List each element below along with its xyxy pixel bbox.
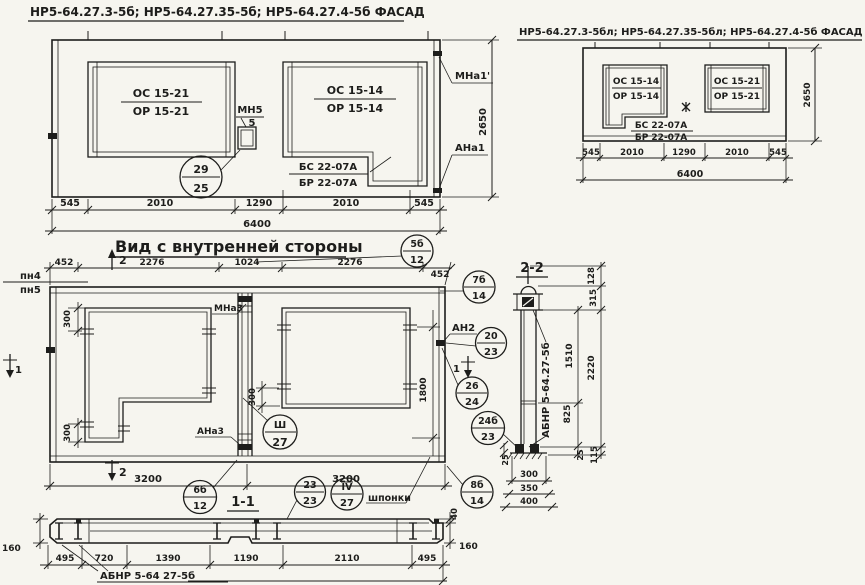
node-num: 24 — [465, 397, 479, 408]
top-tick-marks — [88, 31, 428, 40]
node-circle-6b-12: 6б 12 — [184, 460, 238, 514]
node-num: Ш — [274, 420, 286, 431]
node-num: 12 — [410, 255, 424, 266]
section-label: АБНР 5-64.27-5б — [529, 310, 552, 447]
node-num: 26 — [465, 381, 479, 392]
dim-160-left: 160 — [2, 513, 48, 554]
dim-label: 2650 — [478, 108, 489, 136]
dim-label: 545 — [769, 148, 787, 158]
star-mark — [682, 102, 690, 112]
window-mark: ОС 15-21 — [133, 87, 189, 100]
dim-label: 1390 — [155, 554, 180, 564]
mullion-mark: МН5 — [237, 105, 262, 116]
inner-view-title: Вид с внутренней стороны — [115, 237, 363, 256]
window-mark: ОР 15-14 — [327, 102, 384, 115]
section-1-1: 1-1 160 — [2, 495, 478, 585]
dim-label: 1290 — [672, 148, 696, 158]
node-num: 23 — [303, 496, 317, 507]
dim-label: 1024 — [234, 258, 259, 268]
beam-mark: БС 22-07А БР 22-07А — [289, 157, 391, 189]
node-circle-24b-23: 24б 23 — [472, 412, 519, 449]
facade-mirror-view: НР5-64.27.3-5бл; НР5-64.27.35-5бл; НР5-6… — [517, 26, 863, 183]
cut-marker-1-right: 1 — [453, 356, 475, 378]
edge-anchor-mark — [48, 133, 57, 139]
dim-label: 495 — [418, 554, 437, 564]
rail-label-top: пн4 — [20, 271, 41, 282]
dim-label: 1800 — [419, 377, 429, 402]
dim-label: 2010 — [147, 198, 174, 209]
ground-hatch — [508, 453, 542, 459]
dim-300-mid: 300 — [248, 381, 280, 413]
node-num: 23 — [481, 432, 495, 443]
dim-label: 25 — [576, 449, 585, 461]
drawing-sheet: НР5-64.27.3-5б; НР5-64.27.35-5б; НР5-64.… — [0, 0, 865, 585]
dim-label: 300 — [248, 388, 258, 406]
node-num: 14 — [472, 291, 486, 302]
dim-label: 315 — [589, 289, 599, 307]
label-mna3: МНа3 — [212, 304, 246, 314]
node-circle-8b-14: 8б 14 — [447, 466, 493, 508]
node-circle-26-24: 26 24 — [442, 348, 488, 409]
top-dimensions: 452 2276 1024 2276 452 — [44, 258, 455, 285]
node-num: 23 — [303, 480, 316, 491]
beam-mark-bottom: БР 22-07А — [635, 133, 687, 143]
ibeam-symbols — [55, 519, 440, 539]
dim-label: 6400 — [243, 219, 271, 230]
window-right: ОС 15-21 ОР 15-21 — [705, 65, 769, 112]
anchor-label-bottom: АНа1 — [455, 143, 485, 154]
dim-label: 128 — [587, 267, 597, 285]
dim-label: 2010 — [620, 148, 644, 158]
rail-labels: пн4 пн5 — [3, 271, 88, 296]
dim-label: 160 — [2, 544, 21, 554]
rail-label-bottom: пн5 — [20, 285, 41, 296]
bolt-marks — [277, 325, 417, 389]
facade-main-view: НР5-64.27.3-5б; НР5-64.27.35-5б; НР5-64.… — [28, 5, 499, 235]
dim-label: 2110 — [334, 554, 359, 564]
cut-label: 2 — [119, 254, 127, 267]
section-title: 2-2 — [520, 261, 544, 276]
height-dimension: 2650 — [788, 44, 822, 145]
dim-label: 6400 — [677, 169, 704, 180]
part-label: шпонки — [368, 493, 411, 504]
dim-label: 300 — [520, 470, 538, 480]
facade-mirror-title: НР5-64.27.3-5бл; НР5-64.27.35-5бл; НР5-6… — [519, 26, 863, 38]
beam-mark-top: БС 22-07А — [635, 121, 687, 131]
dim-label: 2010 — [333, 198, 360, 209]
dim-label: 452 — [431, 270, 450, 280]
node-num: 27 — [340, 498, 354, 509]
ibeam — [74, 523, 82, 539]
node-num: 24б — [478, 416, 498, 427]
height-dimension: 2650 — [442, 36, 499, 201]
beam-mark: БС 22-07А БР 22-07А — [631, 121, 693, 143]
label-shponki: шпонки — [366, 457, 430, 504]
window-mark: ОС 15-21 — [714, 77, 760, 87]
part-label: АН2 — [452, 323, 475, 334]
anchor-label-top: МНа1' — [455, 71, 490, 82]
section-label: АБНР 5-64 27-5б — [62, 545, 228, 582]
bottom-dimensions: 3200 3200 — [44, 464, 452, 490]
dim-label: 545 — [414, 198, 434, 209]
cut-label: 1 — [453, 364, 460, 375]
left-25-dimension: 25 — [500, 441, 510, 466]
window-left: ОС 15-21 ОР 15-21 — [88, 62, 235, 157]
dim-label: 1510 — [565, 343, 575, 368]
bottom-dimensions: 545 2010 1290 2010 545 6400 — [576, 143, 793, 183]
dim-label: 2220 — [587, 355, 597, 380]
mullion-strip — [238, 293, 252, 456]
dim-label: 1290 — [246, 198, 273, 209]
dim-label: 300 — [63, 424, 73, 442]
dim-label: 2276 — [139, 258, 164, 268]
node-num: 8б — [470, 480, 484, 491]
dim-label: 825 — [563, 405, 573, 424]
dim-label: 495 — [56, 554, 75, 564]
inner-view: Вид с внутренней стороны пн4 пн5 452 227… — [3, 235, 518, 519]
node-circle-23-23: 23 23 — [287, 477, 326, 520]
part-label: АБНР 5-64.27-5б — [540, 342, 552, 437]
node-num: 20 — [484, 331, 498, 342]
opening-left — [80, 308, 216, 442]
mullion-post: МН5 5 — [236, 105, 264, 149]
top-tick-marks — [595, 42, 769, 48]
dim-label: 25 — [501, 454, 510, 466]
panel-outline — [52, 40, 440, 197]
section-title: 1-1 — [231, 495, 255, 510]
dim-1800: 1800 — [412, 310, 440, 456]
dim-label: 400 — [520, 497, 538, 507]
dim-label: 300 — [63, 310, 73, 328]
part-label: АБНР 5-64 27-5б — [100, 570, 195, 582]
node-num: 29 — [193, 163, 208, 176]
window-mark: ОР 15-21 — [133, 105, 189, 118]
beam-mark-top: БС 22-07А — [299, 162, 357, 173]
label-an2: АН2 — [436, 323, 477, 346]
dim-label: 160 — [459, 542, 478, 552]
node-num: 14 — [470, 496, 484, 507]
dim-label: 1190 — [233, 554, 258, 564]
opening-right — [277, 308, 417, 408]
dim-label: 720 — [95, 554, 114, 564]
node-circle-iv-27: IV 27 — [331, 478, 363, 510]
cut-label: 1 — [15, 365, 22, 376]
dim-40-and-160-right: 40 160 — [434, 508, 478, 552]
blueprint-canvas: НР5-64.27.3-5б; НР5-64.27.35-5б; НР5-64.… — [0, 0, 865, 585]
node-num: 6б — [193, 485, 207, 496]
section-2-2: 2-2 — [500, 261, 606, 511]
beam-mark-bottom: БР 22-07А — [299, 178, 357, 189]
window-mark: ОР 15-14 — [613, 92, 659, 102]
dim-label: 2650 — [803, 82, 813, 107]
panel-outline — [50, 287, 445, 462]
dim-label: 40 — [450, 508, 460, 520]
facade-main-title: НР5-64.27.3-5б; НР5-64.27.35-5б; НР5-64.… — [30, 5, 425, 19]
dim-label: 2010 — [725, 148, 749, 158]
dim-label: 350 — [520, 484, 538, 494]
window-mark: ОС 15-14 — [327, 84, 384, 97]
dim-label: 545 — [60, 198, 80, 209]
cut-marker-2-bottom: 2 — [105, 460, 127, 481]
dim-300-top: 300 — [63, 302, 85, 337]
part-label: АНа3 — [197, 427, 224, 437]
mullion-mark: 5 — [249, 118, 256, 129]
cut-marker-1-left: 1 — [3, 354, 22, 378]
ibeam — [55, 523, 63, 539]
node-num: 5б — [410, 239, 424, 250]
cut-label: 2 — [119, 466, 127, 479]
bolt-marks — [80, 329, 216, 431]
node-num: 12 — [193, 501, 207, 512]
node-num: 25 — [193, 182, 208, 195]
ibeam — [432, 523, 440, 539]
node-num: 27 — [272, 436, 287, 449]
dim-label: 2276 — [337, 258, 362, 268]
window-mark: ОР 15-21 — [714, 92, 760, 102]
window-mark: ОС 15-14 — [613, 77, 659, 87]
label-ana3: АНа3 — [195, 427, 239, 444]
window-left: ОС 15-14 ОР 15-14 — [603, 65, 667, 128]
edge-anchor-mark — [46, 347, 55, 353]
dim-label: 3200 — [134, 474, 162, 485]
dim-label: 115 — [590, 446, 600, 464]
node-num: IV — [342, 482, 354, 493]
node-num: 7б — [472, 275, 486, 286]
dim-label: 545 — [582, 148, 600, 158]
dim-label: 452 — [55, 258, 74, 268]
node-num: 23 — [484, 347, 498, 358]
